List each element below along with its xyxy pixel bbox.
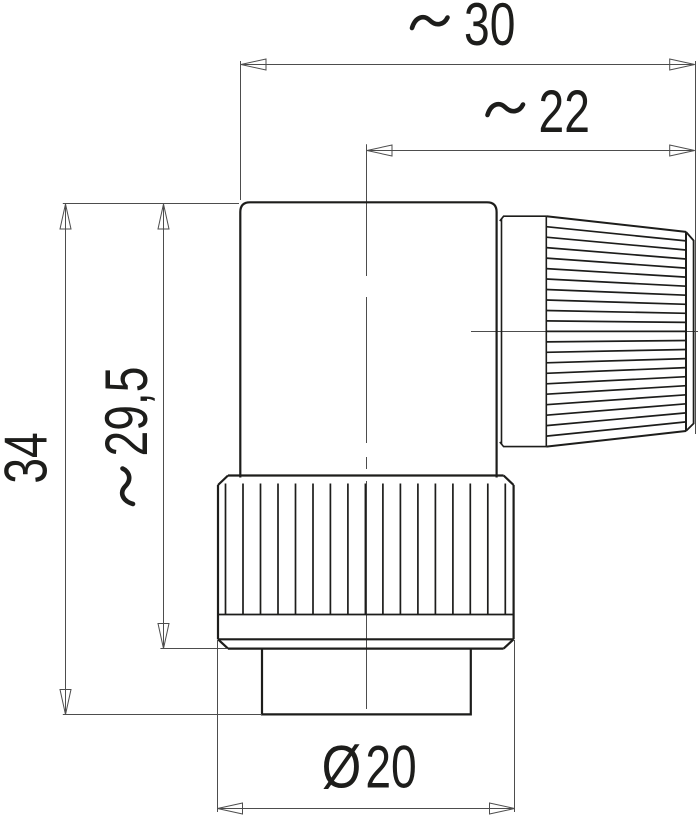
svg-text:34: 34 xyxy=(0,432,60,483)
svg-text:29,5: 29,5 xyxy=(94,367,160,457)
svg-text:20: 20 xyxy=(365,735,416,801)
svg-text:30: 30 xyxy=(464,0,515,58)
svg-text:22: 22 xyxy=(539,79,590,145)
svg-text:Ø: Ø xyxy=(322,734,362,801)
